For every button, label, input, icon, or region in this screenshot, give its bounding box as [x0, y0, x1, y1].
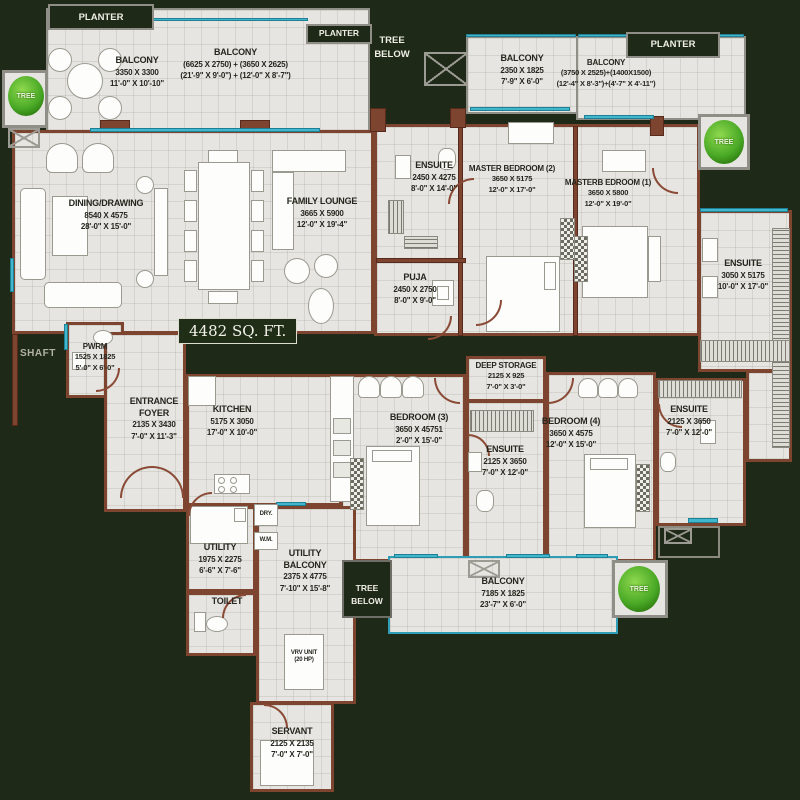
room-dim-ft: (21'-9" X 9'-0") + (12'-0" X 8'-7"): [158, 70, 313, 81]
room-dim-ft: 5'-0" X 6'-0": [70, 363, 120, 374]
deck-ensuite-m1: [700, 340, 790, 362]
master1-bed: [582, 226, 648, 298]
bed4-wardrobe-arch-3: [618, 378, 638, 398]
balcony-chair-3: [48, 96, 72, 120]
dining-chair-bottom: [208, 291, 238, 304]
bed4-rug: [636, 464, 650, 512]
wm-name: W.M.: [254, 537, 278, 544]
label-family-lounge: FAMILY LOUNGE 3665 X 5900 12'-0" X 19'-4…: [282, 196, 362, 230]
label-bedroom4: BEDROOM (4) 3650 X 4575 12'-0" X 15'-0": [540, 416, 602, 450]
room-name: PUJA: [390, 272, 440, 284]
void-top-center: [424, 52, 468, 86]
label-puja: PUJA 2450 X 2750 8'-0" X 9'-0": [390, 272, 440, 306]
room-dim-mm: 3650 X 5800: [558, 188, 658, 199]
label-master1: MASTERB EDROOM (1) 3650 X 5800 12'-0" X …: [558, 178, 658, 209]
floor-plan: TREE TREE TREE PLANTER PLANTER PLANTER T…: [0, 0, 800, 800]
dining-chair-top: [208, 150, 238, 163]
master1-side: [648, 236, 661, 282]
room-name: SERVANT: [264, 726, 320, 738]
room-dim-ft: 8'-0" X 14'-0": [403, 183, 465, 194]
area-badge: 4482 SQ. FT.: [178, 318, 297, 344]
wall-pier-3: [370, 108, 386, 132]
room-name: MASTERB EDROOM (1): [558, 178, 658, 188]
dining-chair-l1: [184, 170, 197, 192]
toilet-tank: [194, 612, 206, 632]
dry-name: DRY.: [254, 511, 278, 518]
room-dim-mm: 2450 X 2750: [390, 284, 440, 295]
bed3-rug: [350, 458, 364, 510]
tree-left: TREE: [8, 76, 44, 116]
room-dim-mm: 2125 X 3650: [476, 456, 534, 467]
room-dim-ft: 7'-0" X 12'-0": [662, 427, 716, 438]
label-servant: SERVANT 2125 X 2135 7'-0" X 7'-0": [264, 726, 320, 760]
label-deep-storage: DEEP STORAGE 2125 X 925 7'-0" X 3'-0": [471, 361, 541, 392]
balcony-chair-4: [98, 96, 122, 120]
room-name: ENSUITE: [403, 160, 465, 172]
side-table-1: [136, 176, 154, 194]
window-ensuite-m1-top: [700, 208, 788, 212]
dining-chair-l3: [184, 230, 197, 252]
armchair-2: [82, 143, 114, 173]
vrv-capacity: (20 HP): [284, 657, 324, 664]
label-balcony-tr2: BALCONY (3750 X 2525)+(1400X1500) (12'-4…: [547, 58, 665, 89]
lounge-pouf: [308, 288, 334, 324]
wardrobe-ensuite-b4: [658, 380, 742, 398]
rail-balcony-tr1: [466, 34, 576, 37]
room-dim-ft: (12'-4" X 8'-3")+(4'-7" X 4'-11"): [547, 79, 665, 90]
room-dim-mm: 3650 X 5175: [462, 174, 562, 185]
room-name: FAMILY LOUNGE: [282, 196, 362, 208]
room-dim-mm: 1975 X 2275: [194, 554, 246, 565]
label-balcony-tc: BALCONY (6625 X 2750) + (3650 X 2625) (2…: [158, 47, 313, 81]
lounge-chair-1: [284, 258, 310, 284]
window-bed4-balcony: [576, 554, 608, 558]
dining-table: [198, 162, 250, 290]
room-dim-mm: 2375 X 4775: [270, 571, 340, 582]
master2-pillow: [544, 262, 556, 290]
wall-pier-5: [650, 116, 664, 136]
vrv-label: VRV UNIT (20 HP): [284, 650, 324, 663]
room-dim-mm: (6625 X 2750) + (3650 X 2625): [158, 59, 313, 70]
room-dim-mm: 2135 X 3430: [126, 419, 182, 430]
bed3-wardrobe-arch-2: [380, 376, 402, 398]
room-dim-mm: 2450 X 4275: [403, 172, 465, 183]
room-name: DEEP STORAGE: [471, 361, 541, 371]
sofa-left: [20, 188, 46, 280]
window-kitchen-bottom: [276, 502, 306, 506]
room-dim-ft: 7'-0" X 11'-3": [126, 431, 182, 442]
tree-below-top-label: TREE BELOW: [364, 34, 420, 63]
room-dim-mm: 2125 X 3650: [662, 416, 716, 427]
room-dim-mm: 7185 X 1825: [464, 588, 542, 599]
room-dim-ft: 8'-0" X 9'-0": [390, 295, 440, 306]
tree-below-bottom-label: TREE BELOW: [346, 582, 388, 608]
kitchen-sink: [188, 376, 216, 406]
room-dim-ft: 12'-0" X 19'-0": [558, 199, 658, 210]
dining-chair-r1: [251, 170, 264, 192]
label-utility: UTILITY 1975 X 2275 6'-6" X 7'-6": [194, 542, 246, 576]
tree-left-label: TREE: [17, 93, 36, 100]
room-dim-ft: 2'-0" X 15'-0": [386, 435, 452, 446]
dining-chair-r3: [251, 230, 264, 252]
room-name: BEDROOM (4): [540, 416, 602, 428]
room-name: DINING/DRAWING: [60, 198, 152, 210]
kitchen-appliance-2: [333, 440, 351, 456]
bed4-wardrobe-arch-2: [598, 378, 618, 398]
label-entrance-foyer: ENTRANCE FOYER 2135 X 3430 7'-0" X 11'-3…: [126, 396, 182, 442]
room-name: ENSUITE: [662, 404, 716, 416]
room-dim-mm: 3650 X 4575: [540, 428, 602, 439]
window-ensb4-bottom: [688, 518, 718, 523]
wm-label: W.M.: [254, 537, 278, 544]
rail-top-balcony: [152, 18, 308, 21]
label-bedroom3: BEDROOM (3) 3650 X 45751 2'-0" X 15'-0": [386, 412, 452, 446]
stove-burner-3: [218, 486, 225, 493]
room-dim-mm: 5175 X 3050: [200, 416, 264, 427]
room-name: UTILITY: [194, 542, 246, 554]
room-dim-ft: 23'-7" X 6'-0": [464, 599, 542, 610]
room-name: KITCHEN: [200, 404, 264, 416]
toilet-bowl: [206, 616, 228, 632]
tree-right: TREE: [704, 120, 744, 164]
window-living-left: [10, 258, 14, 292]
label-dining: DINING/DRAWING 8540 X 4575 28'-0" X 15'-…: [60, 198, 152, 232]
lounge-sofa-h: [272, 150, 346, 172]
label-ensuite-b3: ENSUITE 2125 X 3650 7'-0" X 12'-0": [476, 444, 534, 478]
ensuite-b4-wc: [660, 452, 676, 472]
label-toilet: TOILET: [204, 596, 250, 608]
room-dim-ft: 10'-0" X 17'-0": [710, 281, 776, 292]
room-dim-mm: 2125 X 925: [471, 371, 541, 382]
room-dim-mm: (3750 X 2525)+(1400X1500): [547, 68, 665, 79]
room-dim-ft: 12'-0" X 19'-4": [282, 219, 362, 230]
kitchen-appliance-3: [333, 462, 351, 478]
room-name: PWRM: [70, 342, 120, 352]
room-dim-mm: 3650 X 45751: [386, 424, 452, 435]
wardrobe-ensuite1-h: [404, 236, 438, 249]
wall-shaft-left: [12, 334, 18, 426]
room-dim-ft: 7'-0" X 3'-0": [471, 382, 541, 393]
room-name: ENTRANCE FOYER: [126, 396, 182, 419]
planter-label-2: PLANTER: [310, 27, 368, 40]
room-dim-ft: 7'-0" X 7'-0": [264, 749, 320, 760]
door-puja: [428, 316, 452, 340]
room-name: ENSUITE: [710, 258, 776, 270]
wall-ensuite1-master2: [458, 126, 463, 336]
dining-chair-l2: [184, 200, 197, 222]
dry-label: DRY.: [254, 511, 278, 518]
lounge-chair-2: [314, 254, 338, 278]
bed3-pillow: [372, 450, 412, 462]
bed3-wardrobe-arch-3: [402, 376, 424, 398]
room-name: BALCONY: [547, 58, 665, 68]
armchair-1: [46, 143, 78, 173]
room-name: BALCONY: [158, 47, 313, 59]
planter-label-1: PLANTER: [66, 11, 136, 25]
ensuite-b3-wc: [476, 490, 494, 512]
master2-sofa: [508, 122, 554, 144]
room-dim-ft: 12'-0" X 17'-0": [462, 185, 562, 196]
room-dim-ft: 28'-0" X 15'-0": [60, 221, 152, 232]
tree-bottom-label: TREE: [630, 586, 649, 593]
room-dim-mm: 2125 X 2135: [264, 738, 320, 749]
label-ensuite-m1: ENSUITE 3050 X 5175 10'-0" X 17'-0": [710, 258, 776, 292]
room-name: BEDROOM (3): [386, 412, 452, 424]
side-table-2: [136, 270, 154, 288]
label-master2: MASTER BEDROOM (2) 3650 X 5175 12'-0" X …: [462, 164, 562, 195]
void-bottom-right: [664, 528, 692, 544]
dining-chair-l4: [184, 260, 197, 282]
bed4-pillow: [590, 458, 628, 470]
window-bed3-balcony: [394, 554, 438, 558]
tree-bottom: TREE: [618, 566, 660, 612]
room-dim-mm: 3665 X 5900: [282, 208, 362, 219]
room-name: MASTER BEDROOM (2): [462, 164, 562, 174]
balcony-chair-1: [48, 48, 72, 72]
wardrobe-ensuite1-v: [388, 200, 404, 234]
window-master2-top: [470, 107, 570, 111]
bed3-wardrobe-arch-1: [358, 376, 380, 398]
label-utility-balcony: UTILITY BALCONY 2375 X 4775 7'-10" X 15'…: [270, 548, 340, 594]
dining-chair-r4: [251, 260, 264, 282]
label-ensuite1: ENSUITE 2450 X 4275 8'-0" X 14'-0": [403, 160, 465, 194]
room-dim-ft: 7'-0" X 12'-0": [476, 467, 534, 478]
balcony-table: [67, 63, 103, 99]
room-dim-mm: 3050 X 5175: [710, 270, 776, 281]
room-dim-ft: 7'-10" X 15'-8": [270, 583, 340, 594]
sofa-bottom: [44, 282, 122, 308]
room-name: ENSUITE: [476, 444, 534, 456]
room-dim-mm: 1525 X 1825: [70, 352, 120, 363]
utility-bed-fold: [234, 508, 246, 522]
window-master1-top: [584, 115, 654, 119]
room-dim-ft: 12'-0" X 15'-0": [540, 439, 602, 450]
label-ensuite-b4: ENSUITE 2125 X 3650 7'-0" X 12'-0": [662, 404, 716, 438]
room-dim-mm: 8540 X 4575: [60, 210, 152, 221]
bed4-wardrobe-arch-1: [578, 378, 598, 398]
label-kitchen: KITCHEN 5175 X 3050 17'-0" X 10'-0": [200, 404, 264, 438]
master2-rug: [560, 218, 575, 260]
kitchen-appliance-1: [333, 418, 351, 434]
master1-rug: [574, 236, 588, 282]
tv-console: [154, 188, 168, 276]
window-ensb3-balcony: [506, 554, 550, 558]
vrv-name: VRV UNIT: [284, 650, 324, 657]
dining-chair-r2: [251, 200, 264, 222]
master1-sofa: [602, 150, 646, 172]
room-dim-ft: 17'-0" X 10'-0": [200, 427, 264, 438]
window-living-top: [90, 128, 320, 132]
tree-right-label: TREE: [715, 139, 734, 146]
room-name: TOILET: [204, 596, 250, 608]
stove-burner-1: [218, 477, 225, 484]
wall-ensuite1-puja: [376, 258, 466, 263]
room-name: BALCONY: [464, 576, 542, 588]
label-bottom-balcony: BALCONY 7185 X 1825 23'-7" X 6'-0": [464, 576, 542, 610]
wardrobe-ensuite-b3: [470, 410, 534, 432]
room-name: UTILITY BALCONY: [270, 548, 340, 571]
stove-burner-4: [230, 486, 237, 493]
room-dim-ft: 6'-6" X 7'-6": [194, 565, 246, 576]
tree-left-stand: [8, 128, 40, 148]
stove-burner-2: [230, 477, 237, 484]
label-pwrm: PWRM 1525 X 1825 5'-0" X 6'-0": [70, 342, 120, 373]
planter-label-3: PLANTER: [634, 38, 712, 52]
wall-pier-4: [450, 108, 466, 128]
